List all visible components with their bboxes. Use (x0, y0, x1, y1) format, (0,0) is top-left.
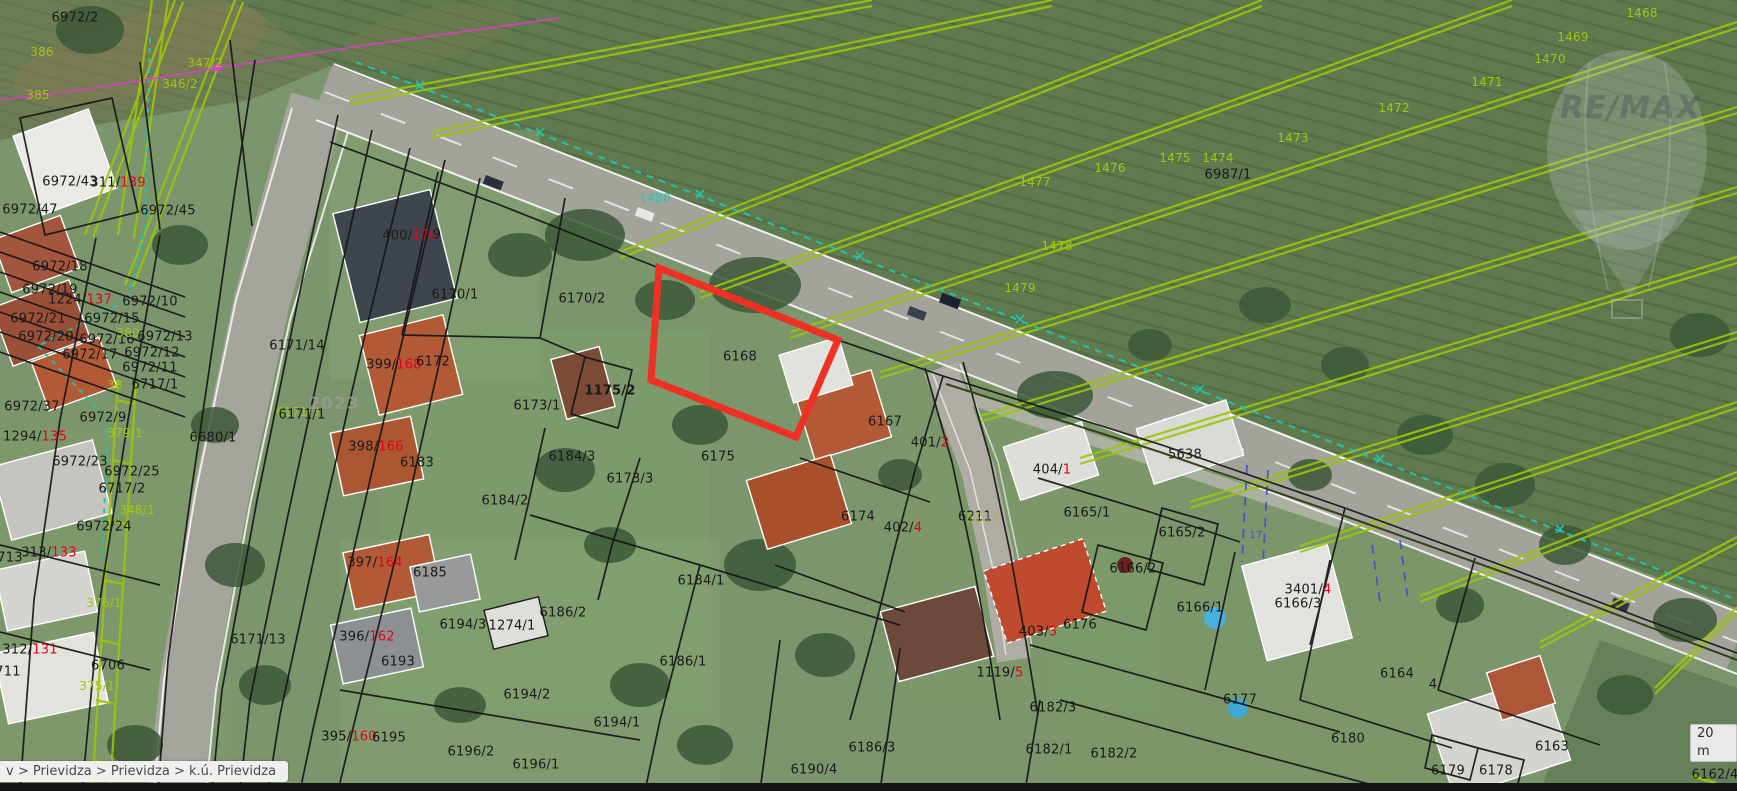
imagery-year-watermark: 2023 (308, 394, 359, 414)
map-canvas[interactable]: RE/MAX (0, 0, 1737, 791)
scale-indicator: 20 m (1690, 724, 1737, 762)
breadcrumb[interactable]: v > Prievidza > Prievidza > k.ú. Prievid… (0, 761, 288, 782)
map-viewport[interactable]: RE/MAX 6972/26972/43311/1396972/476972/4… (0, 0, 1737, 791)
remax-watermark-text: RE/MAX (1560, 90, 1702, 126)
bottom-edge-strip (0, 783, 1737, 791)
